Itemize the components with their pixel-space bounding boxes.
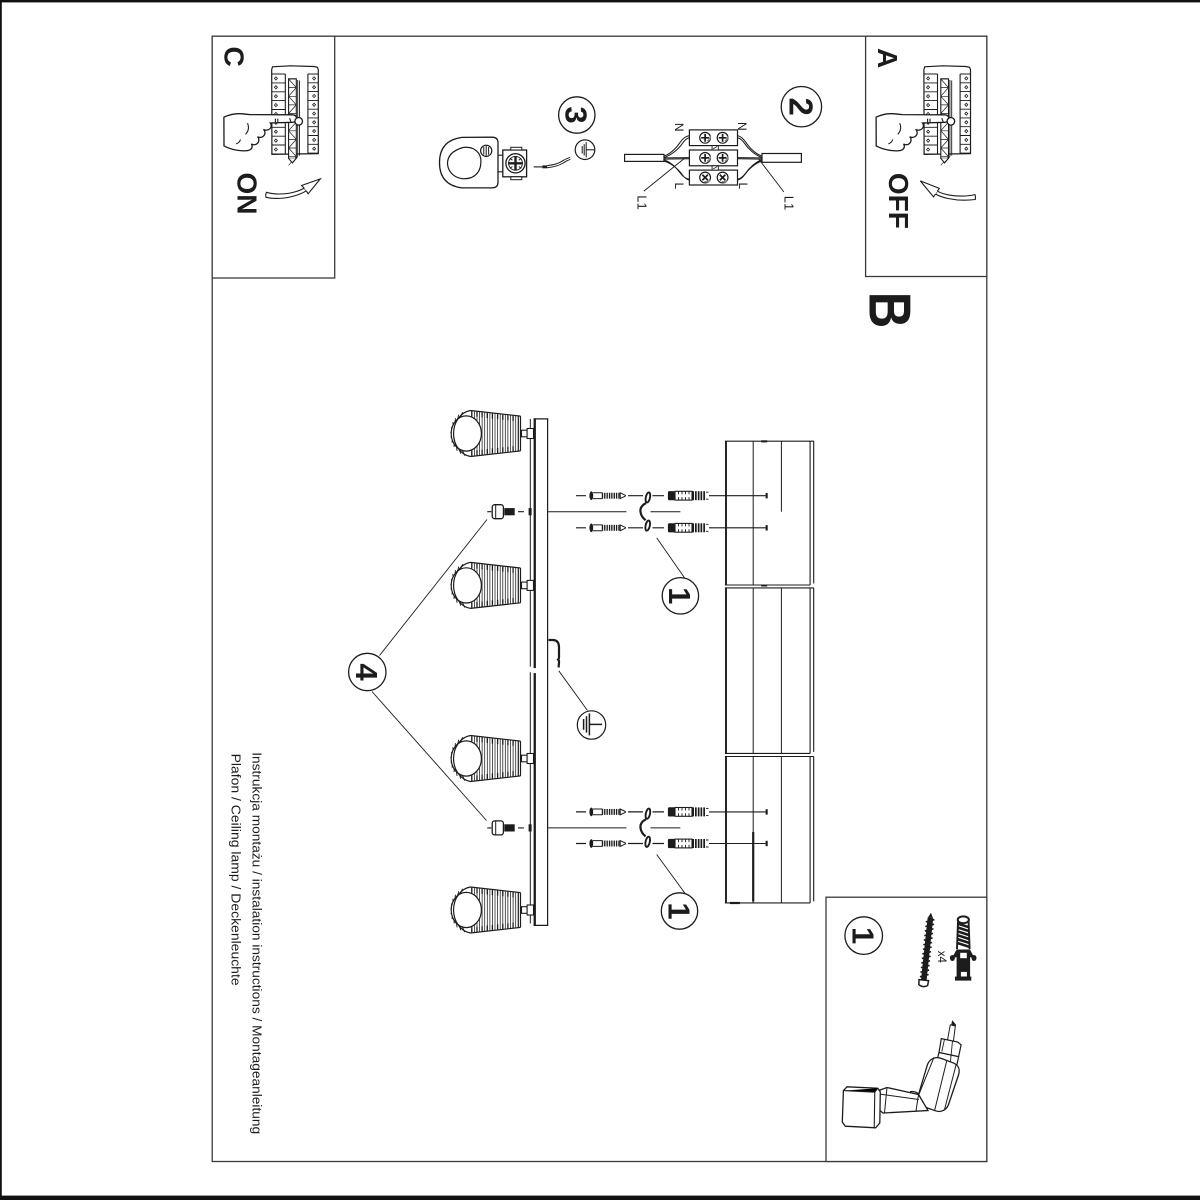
svg-text:B: B — [856, 292, 922, 329]
svg-text:N: N — [672, 123, 686, 132]
svg-text:L1: L1 — [635, 195, 650, 209]
svg-text:4: 4 — [349, 663, 384, 681]
svg-text:Plafon / Ceiling lamp / Decken: Plafon / Ceiling lamp / Deckenleuchte — [228, 754, 243, 986]
svg-text:1: 1 — [661, 902, 696, 919]
svg-text:N: N — [735, 122, 749, 131]
svg-text:L: L — [736, 183, 750, 190]
svg-text:OFF: OFF — [883, 173, 914, 229]
svg-text:2: 2 — [783, 98, 820, 116]
svg-text:C: C — [219, 47, 250, 67]
svg-text:Instrukcja montażu / instalati: Instrukcja montażu / instalation instruc… — [249, 752, 264, 1134]
svg-text:1: 1 — [846, 927, 881, 944]
svg-text:ON: ON — [232, 173, 263, 215]
svg-text:A: A — [872, 48, 903, 68]
svg-text:x4: x4 — [935, 951, 947, 964]
svg-text:3: 3 — [559, 106, 594, 123]
svg-text:L: L — [672, 183, 686, 190]
svg-text:L1: L1 — [782, 196, 797, 210]
svg-text:1: 1 — [662, 587, 697, 604]
